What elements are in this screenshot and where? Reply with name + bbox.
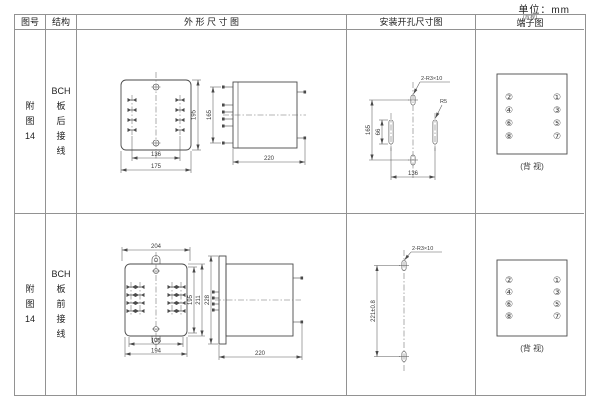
- header-outline: 外 形 尺 寸 图: [77, 15, 347, 30]
- mounting-drawing-front-wiring: 221±0.8 2-R3×10: [347, 214, 475, 394]
- terminal-6: ⑥: [505, 299, 513, 309]
- row1-outline-cell: 136 175 195: [77, 30, 347, 214]
- header-figure: 图号: [15, 15, 46, 30]
- hole-spec-label: 2-R3×10: [412, 246, 433, 252]
- terminal-3: ③: [553, 287, 561, 297]
- dim-width-inner: 136: [151, 152, 162, 158]
- terminal-1: ①: [553, 92, 561, 102]
- dim-stud-span: 165: [207, 109, 213, 120]
- row1-mounting-cell: 165 66 136 2-R3×10 R5: [347, 30, 476, 214]
- outline-drawing-rear-wiring: 136 175 195: [77, 30, 346, 213]
- header-terminal: (背视) 端子图: [476, 15, 584, 30]
- terminal-2: ②: [505, 275, 513, 285]
- terminal-6: ⑥: [505, 118, 513, 128]
- dim-height-outer: 228: [205, 294, 211, 305]
- row1-figure-no: 附 图 14: [15, 30, 46, 214]
- dim-mount-width: 136: [408, 171, 419, 177]
- row2-terminal-cell: ② ④ ⑥ ⑧ ① ③ ⑤ ⑦ (背 视): [476, 214, 584, 395]
- header-mounting: 安装开孔尺寸图: [347, 15, 476, 30]
- slot-radius-label: R5: [440, 99, 447, 105]
- dim-depth: 220: [255, 351, 266, 357]
- dim-width-outer: 194: [151, 349, 162, 355]
- terminal-2: ②: [505, 92, 513, 102]
- dim-mount-height: 221±0.8: [371, 300, 377, 322]
- dim-height-inner: 195: [188, 294, 194, 305]
- row2-figure-no: 附 图 14: [15, 214, 46, 395]
- outline-drawing-front-wiring: 204 175 194 195 211: [77, 214, 346, 394]
- terminal-5: ⑤: [553, 299, 561, 309]
- spec-table: 图号 结构 外 形 尺 寸 图 安装开孔尺寸图 (背视) 端子图 附 图 14 …: [14, 14, 586, 396]
- row1-terminal-cell: ② ④ ⑥ ⑧ ① ③ ⑤ ⑦ (背 视): [476, 30, 584, 214]
- terminal-8: ⑧: [505, 311, 513, 321]
- header-structure: 结构: [46, 15, 77, 30]
- dim-height: 195: [192, 109, 198, 120]
- dim-depth: 220: [264, 156, 275, 162]
- dim-width-outer: 175: [151, 164, 162, 170]
- terminal-diagram-rear-wiring: ② ④ ⑥ ⑧ ① ③ ⑤ ⑦ (背 视): [476, 30, 583, 213]
- terminal-7: ⑦: [553, 311, 561, 321]
- terminal-4: ④: [505, 105, 513, 115]
- terminal-diagram-front-wiring: ② ④ ⑥ ⑧ ① ③ ⑤ ⑦ (背 视): [476, 214, 583, 394]
- terminal-4: ④: [505, 287, 513, 297]
- row2-outline-cell: 204 175 194 195 211: [77, 214, 347, 395]
- hole-spec-label: 2-R3×10: [421, 76, 442, 82]
- terminal-3: ③: [553, 105, 561, 115]
- view-caption: (背 视): [520, 343, 544, 353]
- dim-slot-length: 66: [376, 128, 382, 135]
- terminal-7: ⑦: [553, 131, 561, 141]
- dim-width-top: 204: [151, 244, 162, 250]
- dim-mount-height: 165: [366, 124, 372, 135]
- row1-structure: BCH 板 后 接 线: [46, 30, 77, 214]
- terminal-8: ⑧: [505, 131, 513, 141]
- terminal-5: ⑤: [553, 118, 561, 128]
- spec-page: 单位：mm 图号 结构 外 形 尺 寸 图 安装开孔尺寸图 (背视) 端子图 附…: [0, 0, 600, 400]
- view-caption: (背 视): [520, 161, 544, 171]
- dim-width-inner: 175: [151, 339, 162, 345]
- mounting-drawing-rear-wiring: 165 66 136 2-R3×10 R5: [347, 30, 475, 213]
- terminal-1: ①: [553, 275, 561, 285]
- row2-mounting-cell: 221±0.8 2-R3×10: [347, 214, 476, 395]
- row2-structure: BCH 板 前 接 线: [46, 214, 77, 395]
- dim-height-mid: 211: [196, 295, 202, 305]
